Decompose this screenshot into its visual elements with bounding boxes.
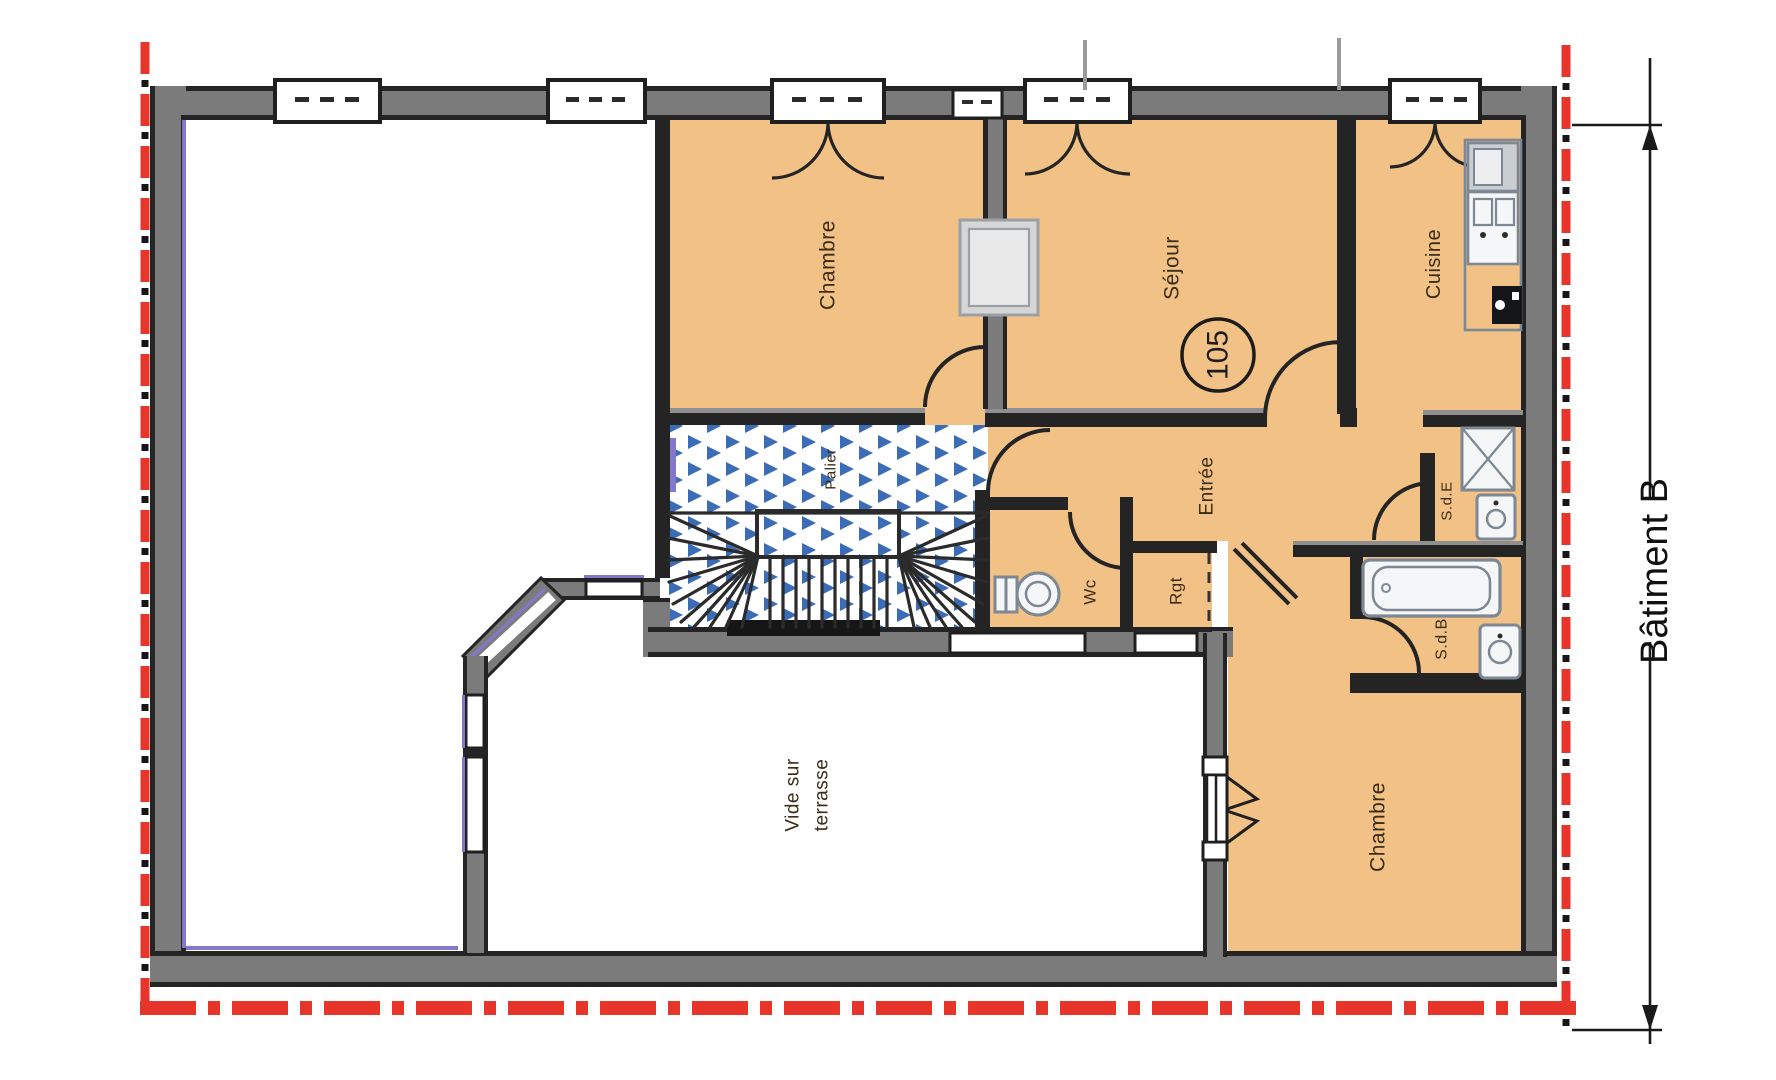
shower-fixture xyxy=(1462,428,1514,490)
window xyxy=(953,90,1002,118)
bathtub-fixture xyxy=(1363,560,1500,616)
door-gap xyxy=(1357,410,1423,427)
french-door-glazing xyxy=(1207,775,1216,842)
label-sejour: Séjour xyxy=(1161,236,1184,300)
bay-window xyxy=(466,757,484,852)
label-batiment: Bâtiment B xyxy=(1634,478,1676,664)
label-entree: Entrée xyxy=(1197,457,1218,516)
arrowhead-up xyxy=(1642,125,1658,150)
window xyxy=(950,633,1085,653)
washbasin-fixture xyxy=(1480,625,1520,678)
floor-plan-page: Chambre Séjour Cuisine Entrée Wc Rgt S.d… xyxy=(0,0,1776,1080)
arrowhead-down xyxy=(1642,1005,1658,1030)
door-frame-post xyxy=(1203,757,1227,775)
label-sdb: S.d.B xyxy=(1434,618,1451,660)
label-sde: S.d.E xyxy=(1439,481,1456,520)
label-chambre-se: Chambre xyxy=(1367,782,1390,872)
door-frame-post xyxy=(1203,842,1227,860)
duct-flue xyxy=(960,220,1038,315)
bay-window xyxy=(466,695,484,748)
label-vide-line2: terrasse xyxy=(812,759,833,832)
label-cuisine: Cuisine xyxy=(1423,229,1445,299)
room-wc-rgt-floor xyxy=(988,497,1212,633)
floor-plan-drawing: Chambre Séjour Cuisine Entrée Wc Rgt S.d… xyxy=(0,0,1776,1080)
label-wc: Wc xyxy=(1081,579,1100,605)
washbasin-fixture xyxy=(1477,495,1515,539)
label-vide-line1: Vide sur xyxy=(783,758,804,832)
label-chambre-nw: Chambre xyxy=(817,220,840,310)
door-gap xyxy=(925,409,985,427)
toilet-fixture xyxy=(995,573,1059,615)
window-lintel xyxy=(727,620,880,636)
bay-window-walls xyxy=(462,575,670,953)
window xyxy=(275,80,380,122)
interior-finish-lines xyxy=(182,120,458,950)
window xyxy=(548,80,645,122)
door-gap xyxy=(1267,410,1340,427)
bay-window xyxy=(586,581,642,597)
label-rgt: Rgt xyxy=(1167,577,1186,605)
window xyxy=(1135,633,1197,653)
label-unit-number: 105 xyxy=(1202,330,1235,380)
label-palier: Palier xyxy=(823,448,840,489)
